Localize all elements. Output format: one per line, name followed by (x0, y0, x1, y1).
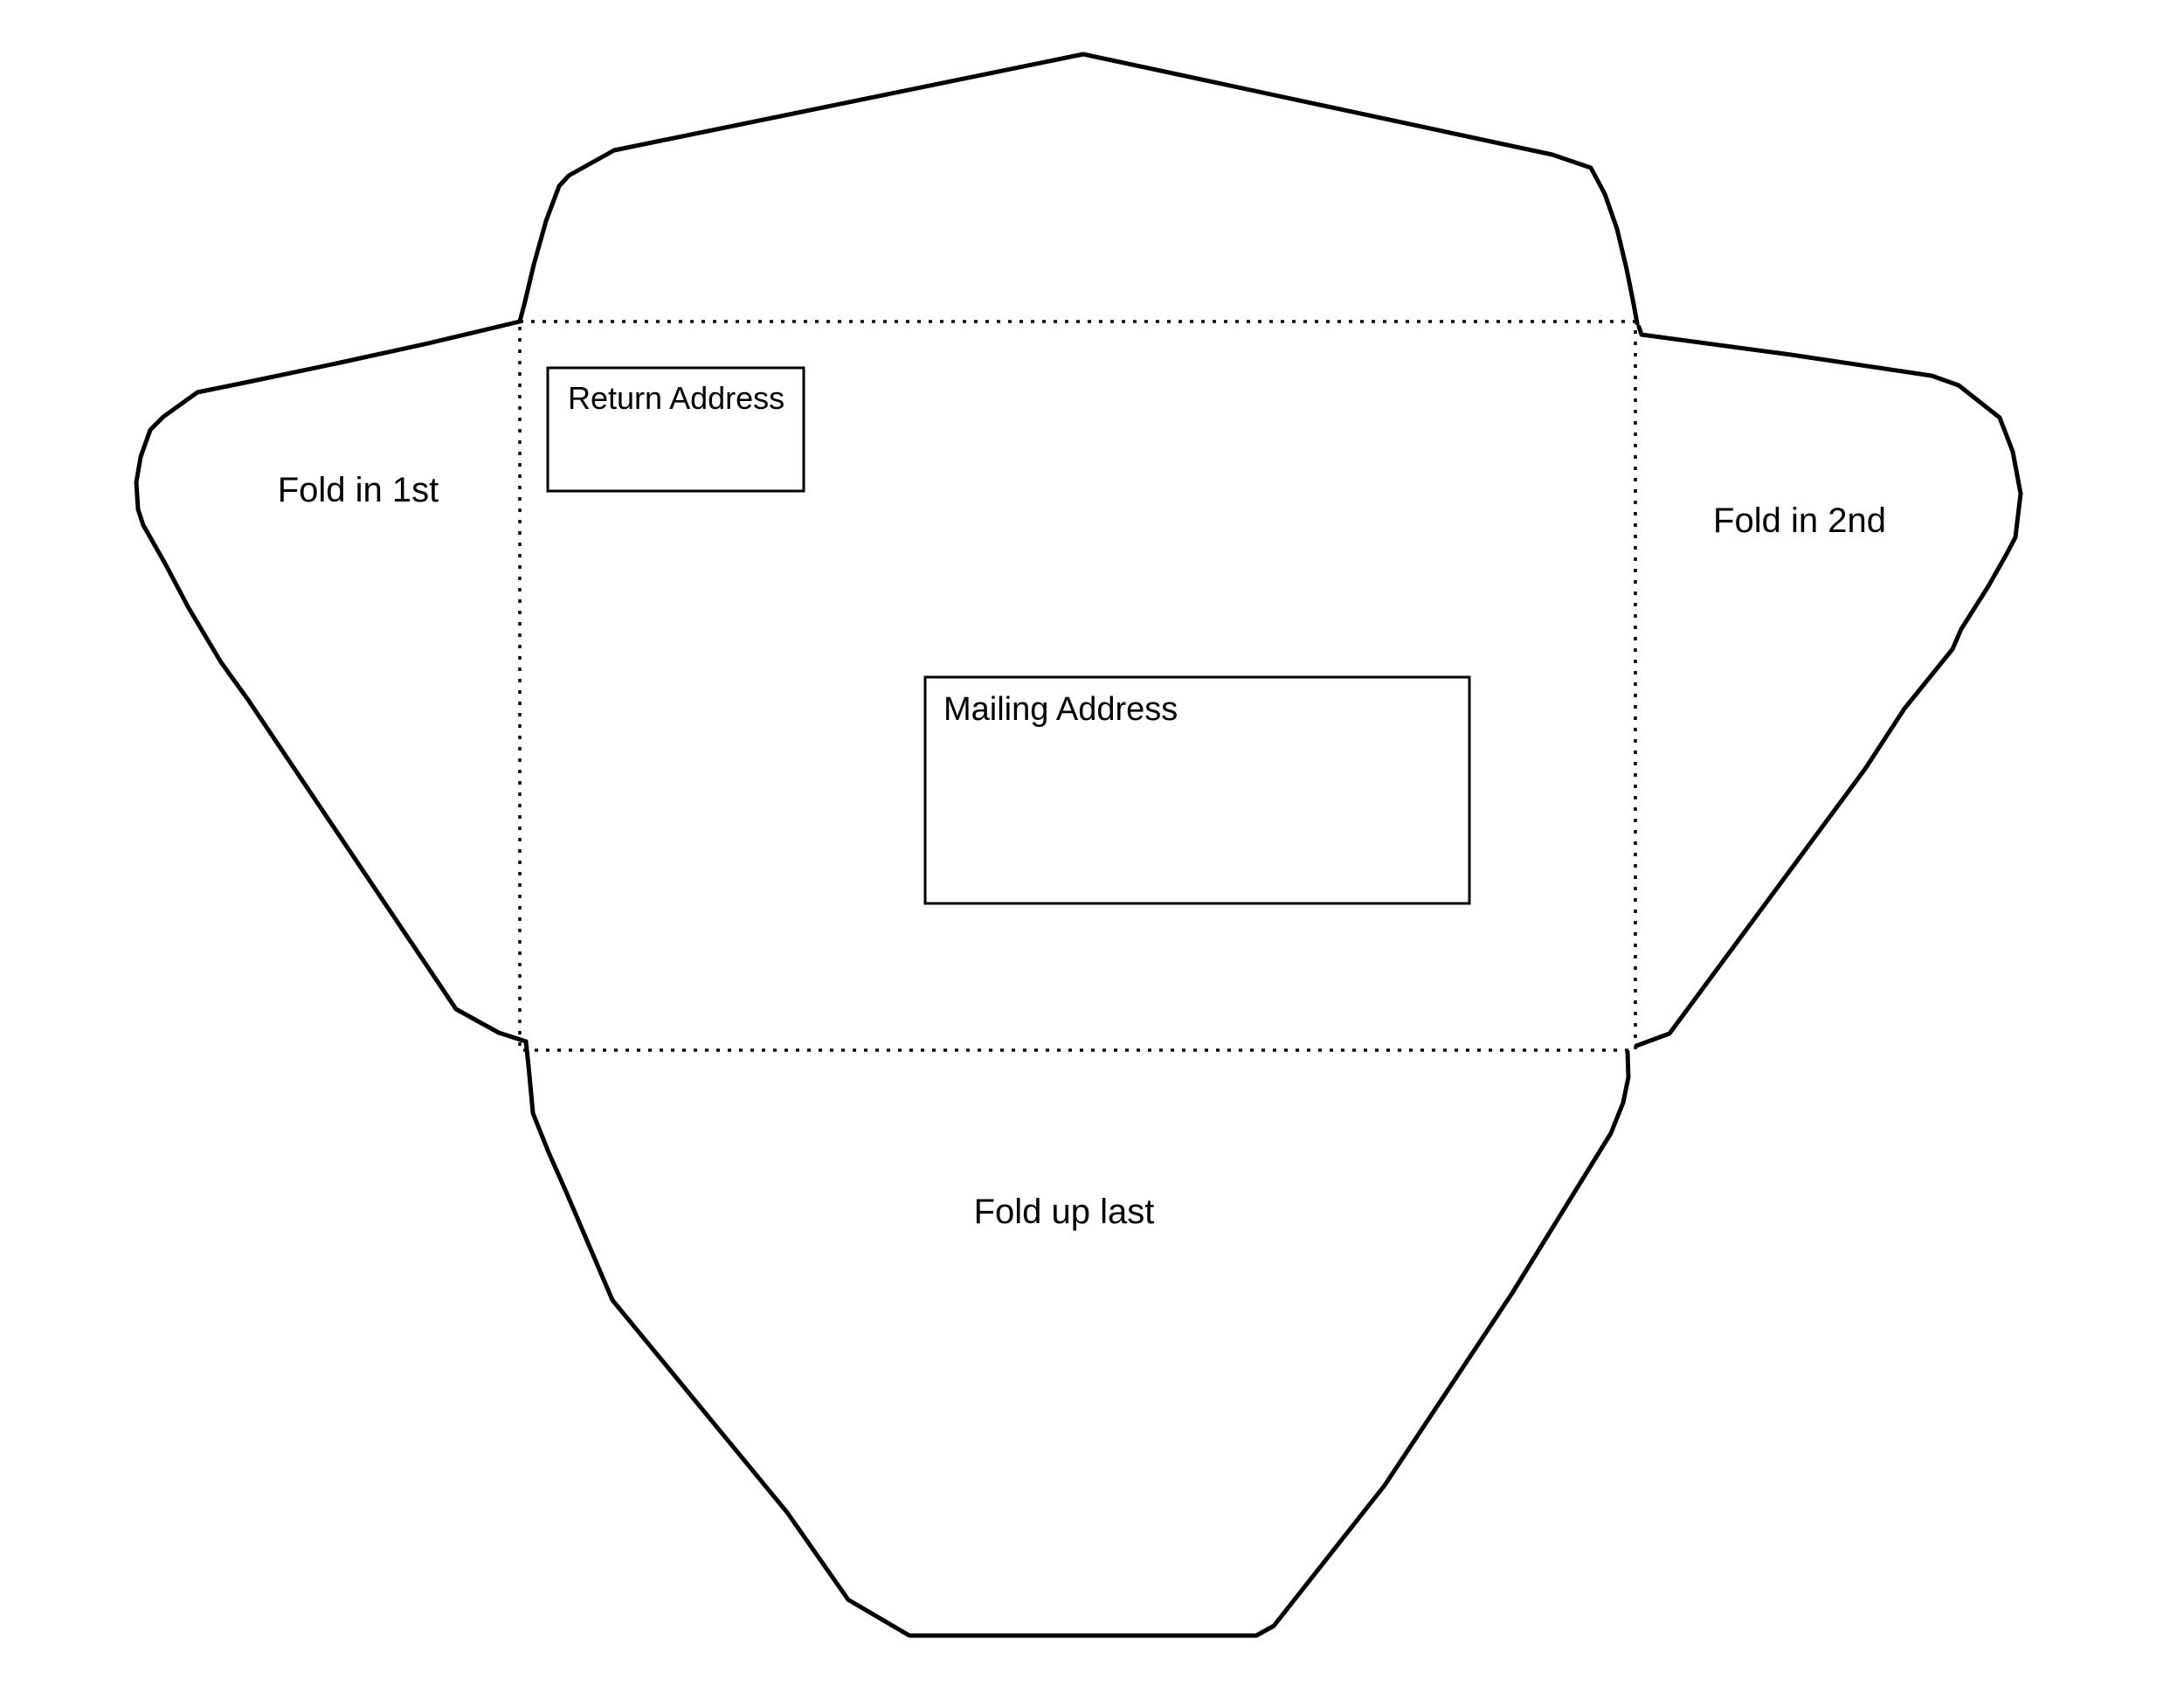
fold-in-2nd-label: Fold in 2nd (1713, 502, 1886, 540)
mailing-address-label: Mailing Address (943, 691, 1178, 728)
fold-up-last-label: Fold up last (974, 1193, 1155, 1231)
left-flap-outline (136, 322, 526, 1041)
fold-in-1st-label: Fold in 1st (278, 471, 439, 509)
return-address-label: Return Address (568, 380, 784, 416)
envelope-template-drawing: Return Address Mailing Address Fold in 1… (0, 0, 2184, 1688)
top-flap-outline (520, 54, 1637, 323)
right-flap-outline (1636, 327, 2021, 1046)
envelope-template-page: Return Address Mailing Address Fold in 1… (0, 0, 2184, 1688)
bottom-flap-outline (526, 1041, 1628, 1636)
fold-boundary-dotted-rect (520, 322, 1635, 1050)
